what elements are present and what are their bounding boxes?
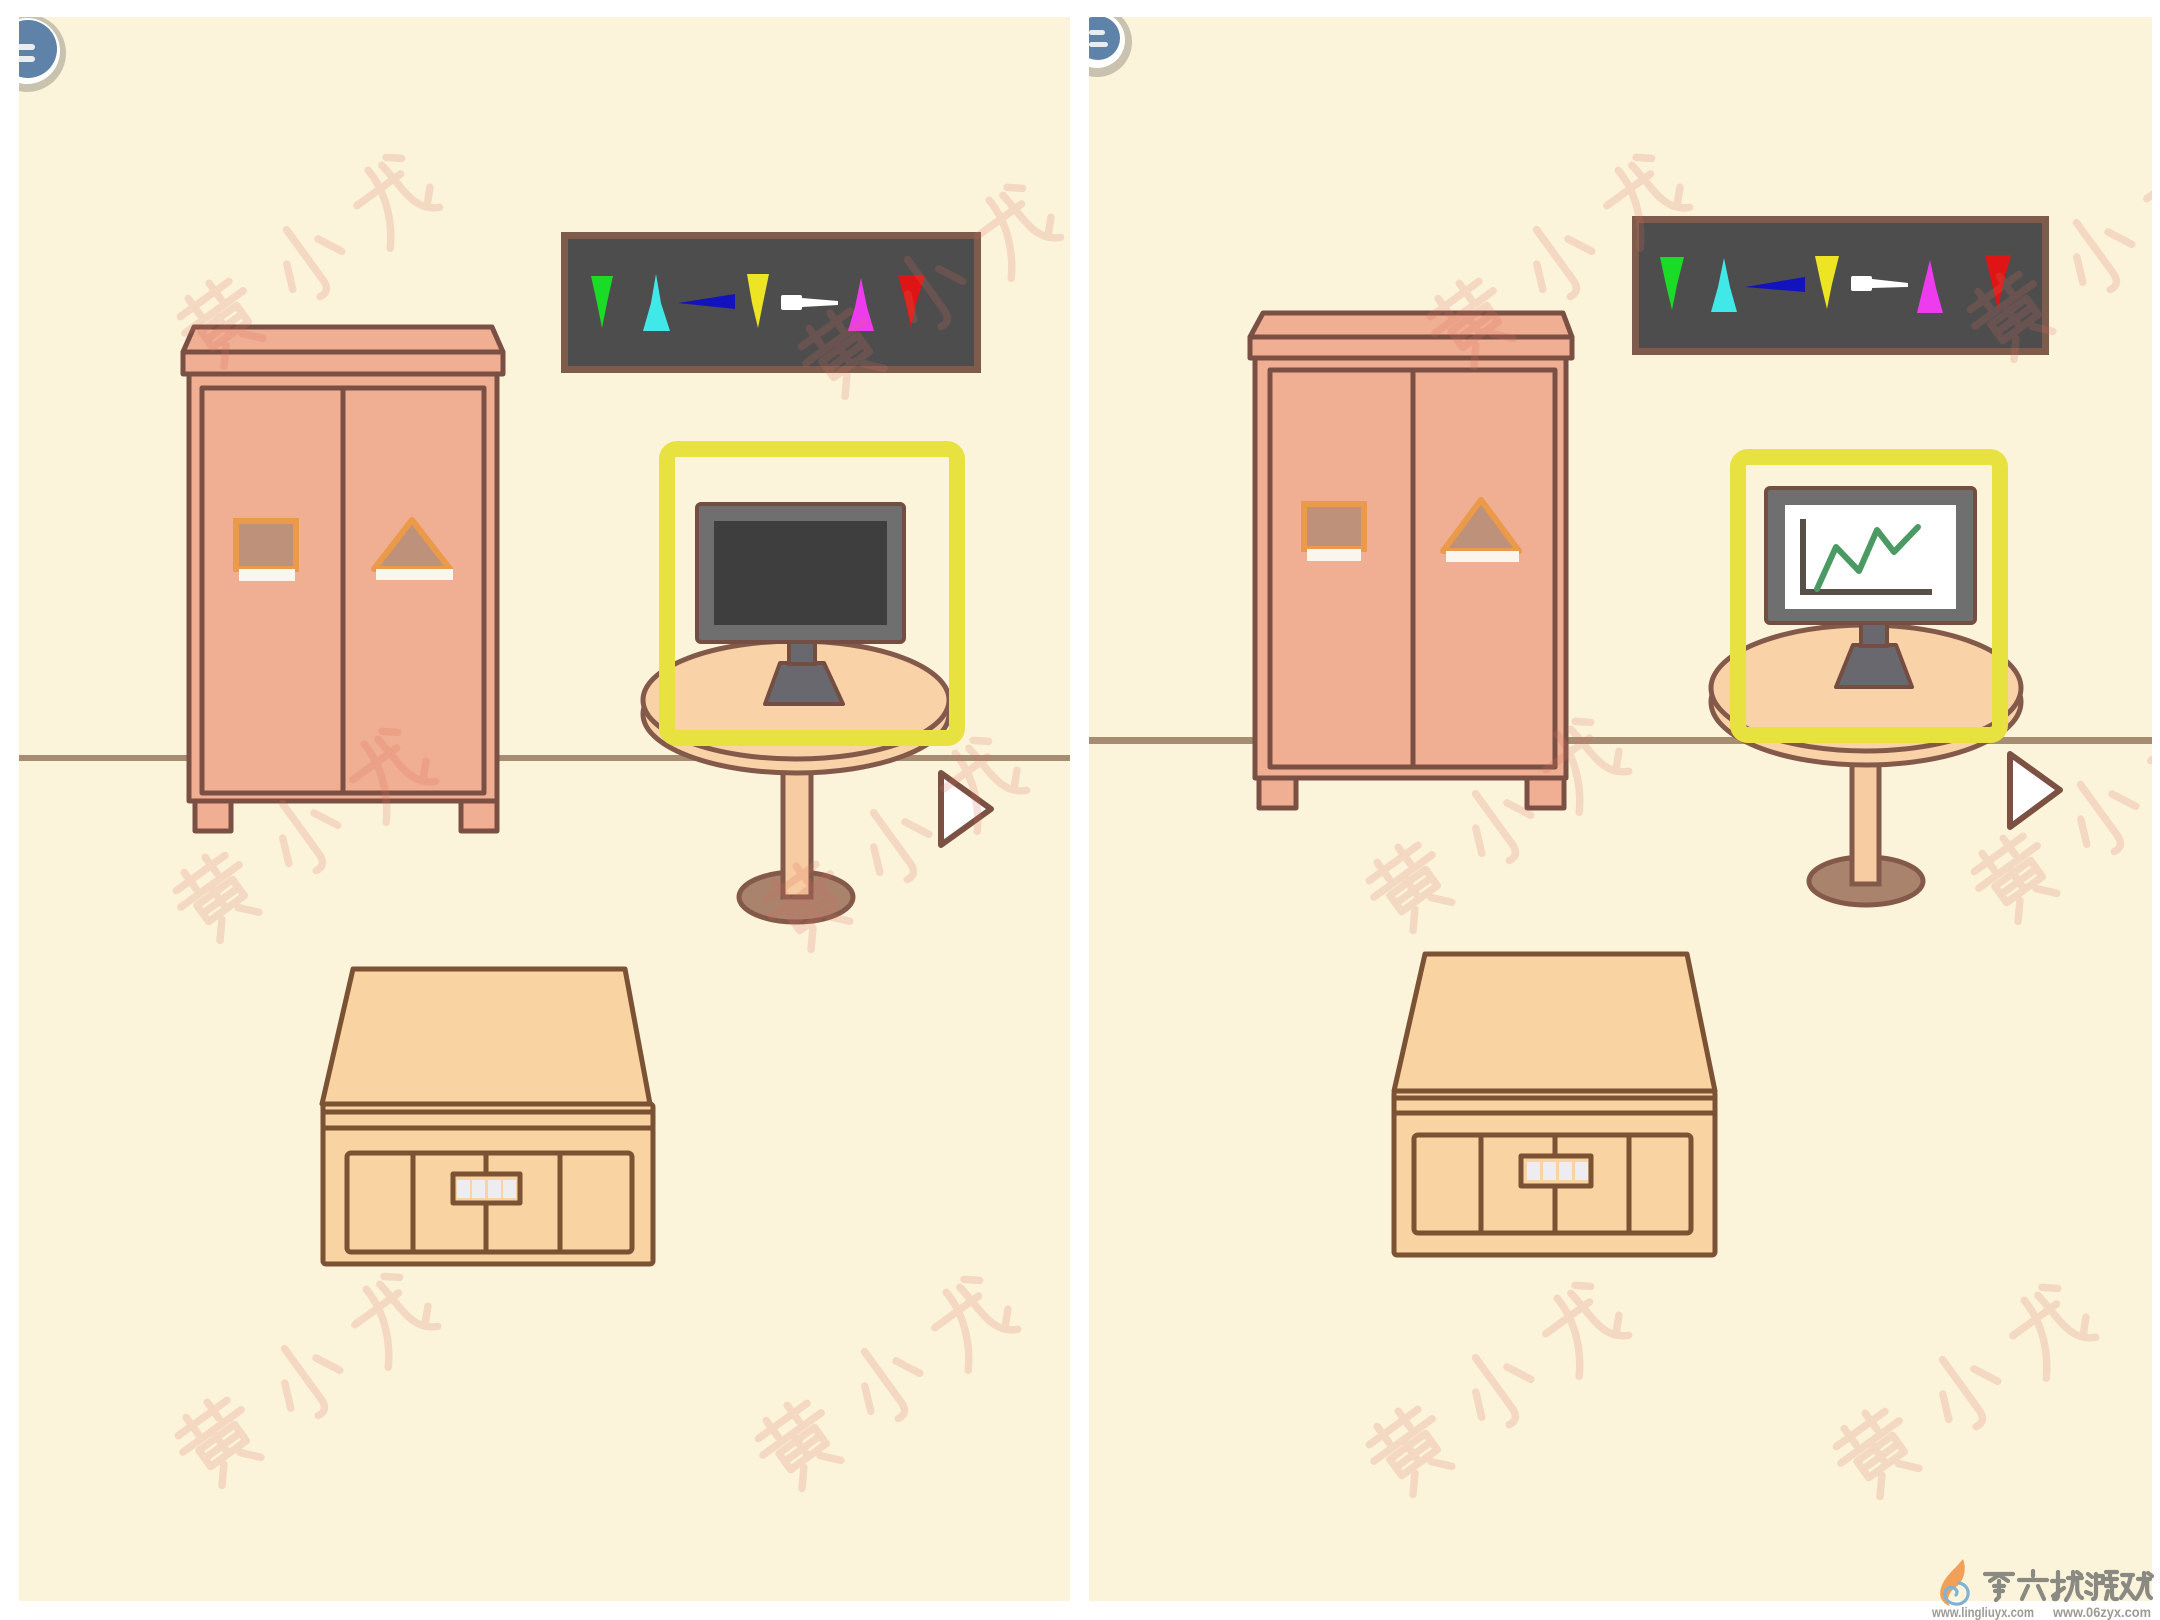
svg-text:www.lingliuyx.com: www.lingliuyx.com [1931,1604,2034,1620]
svg-text:www.06zyx.com: www.06zyx.com [2052,1604,2151,1620]
